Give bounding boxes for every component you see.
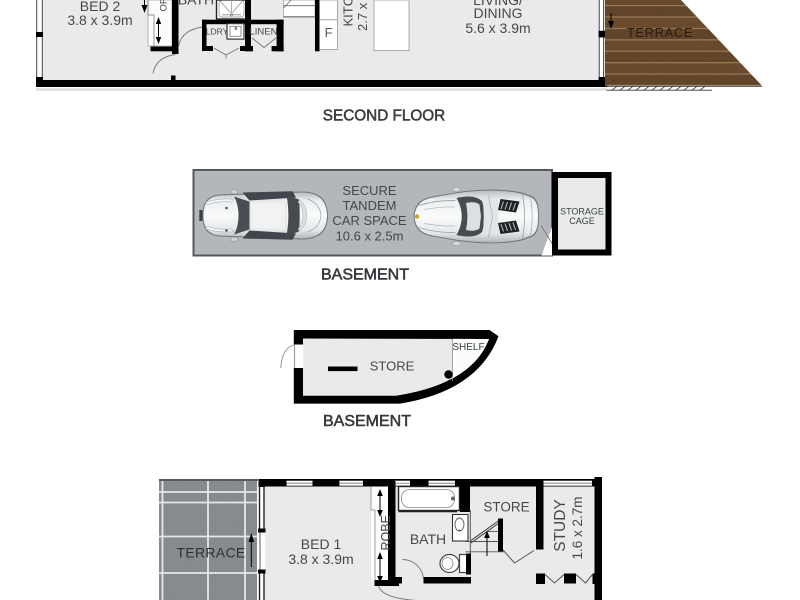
svg-text:SECOND FLOOR: SECOND FLOOR: [323, 108, 445, 125]
svg-text:STUDY: STUDY: [552, 499, 569, 552]
svg-text:BASEMENT: BASEMENT: [321, 267, 409, 284]
svg-text:TERRACE: TERRACE: [627, 25, 693, 40]
svg-text:STORE: STORE: [370, 359, 415, 374]
svg-text:ROBE: ROBE: [379, 515, 393, 550]
svg-text:TANDEM: TANDEM: [343, 198, 397, 213]
svg-text:BATH: BATH: [410, 531, 446, 547]
svg-text:BED 1: BED 1: [301, 536, 342, 552]
svg-text:TERRACE: TERRACE: [177, 545, 246, 561]
svg-text:SHELF: SHELF: [452, 342, 484, 353]
svg-text:SECURE: SECURE: [342, 183, 397, 198]
svg-text:STORAGE: STORAGE: [560, 207, 604, 217]
svg-text:2.7 x 2.2m: 2.7 x 2.2m: [355, 0, 370, 31]
svg-text:CAR SPACE: CAR SPACE: [332, 213, 406, 228]
svg-text:5.6 x 3.9m: 5.6 x 3.9m: [465, 20, 530, 36]
svg-text:F: F: [325, 25, 333, 40]
svg-text:3.8 x 3.9m: 3.8 x 3.9m: [288, 551, 353, 567]
svg-text:3.8 x 3.9m: 3.8 x 3.9m: [67, 12, 132, 28]
svg-text:DINING: DINING: [474, 5, 523, 21]
svg-text:OR: OR: [159, 0, 170, 12]
svg-text:LINEN: LINEN: [250, 27, 278, 38]
svg-text:10.6 x 2.5m: 10.6 x 2.5m: [336, 228, 404, 243]
svg-text:1.6 x 2.7m: 1.6 x 2.7m: [570, 496, 585, 559]
svg-text:LDRY: LDRY: [206, 27, 229, 37]
svg-text:KITCHEN: KITCHEN: [341, 0, 356, 27]
svg-text:BATH: BATH: [178, 0, 214, 8]
svg-text:BASEMENT: BASEMENT: [323, 413, 411, 430]
svg-text:STORE: STORE: [483, 500, 529, 515]
svg-text:CAGE: CAGE: [569, 216, 595, 226]
